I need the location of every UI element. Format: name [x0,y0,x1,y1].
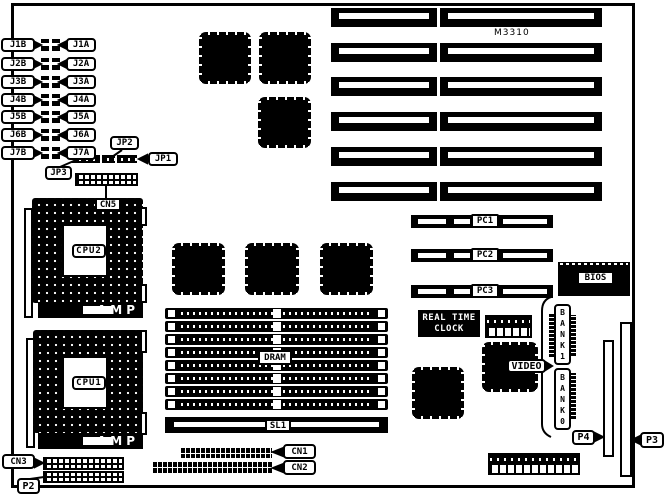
video-chip-label: VIDEO [507,359,546,373]
dram-label: DRAM [258,350,292,365]
pc2-label: PC2 [471,248,499,262]
jumper-label-j3b: J3B [1,75,35,89]
p3-label: P3 [640,432,664,448]
jumper-label-j4b: J4B [1,93,35,107]
jumper-label-j4a: J4A [66,93,96,107]
p4-label: P4 [572,430,595,445]
pc3-label: PC3 [471,284,499,298]
pc1-label: PC1 [471,214,499,228]
jumper-label-j5b: J5B [1,110,35,124]
cpu2-label: CPU2 [72,244,106,258]
jumper-label-j1a: J1A [66,38,96,52]
bank1-slot-label: BANK1 [554,304,571,365]
cn1-label: CN1 [283,444,316,459]
p2-label: P2 [17,478,40,494]
jumper-label-jp3: JP3 [45,166,72,180]
jumper-label-j2b: J2B [1,57,35,71]
cpu1-label: CPU1 [72,376,106,390]
jumper-label-jp1: JP1 [148,152,178,166]
sl1-label: SL1 [265,419,291,432]
jumper-label-j7a: J7A [66,146,96,160]
cn2-label: CN2 [283,460,316,475]
jumper-label-j2a: J2A [66,57,96,71]
jumper-label-j6a: J6A [66,128,96,142]
cn3-label: CN3 [2,454,35,469]
jumper-label-j6b: J6B [1,128,35,142]
jumper-label-jp2: JP2 [110,136,139,150]
jumper-label-j1b: J1B [1,38,35,52]
jumper-label-j7b: J7B [1,146,35,160]
bios-label: BIOS [577,271,614,285]
jumper-label-j5a: J5A [66,110,96,124]
jumper-label-j3a: J3A [66,75,96,89]
motherboard-diagram: M3310 VIDEO J1B J1A J2B J2A J3B J3A J4B … [0,0,665,497]
bank0-slot-label: BANK0 [554,368,571,430]
cn5-label: CN5 [95,198,121,211]
